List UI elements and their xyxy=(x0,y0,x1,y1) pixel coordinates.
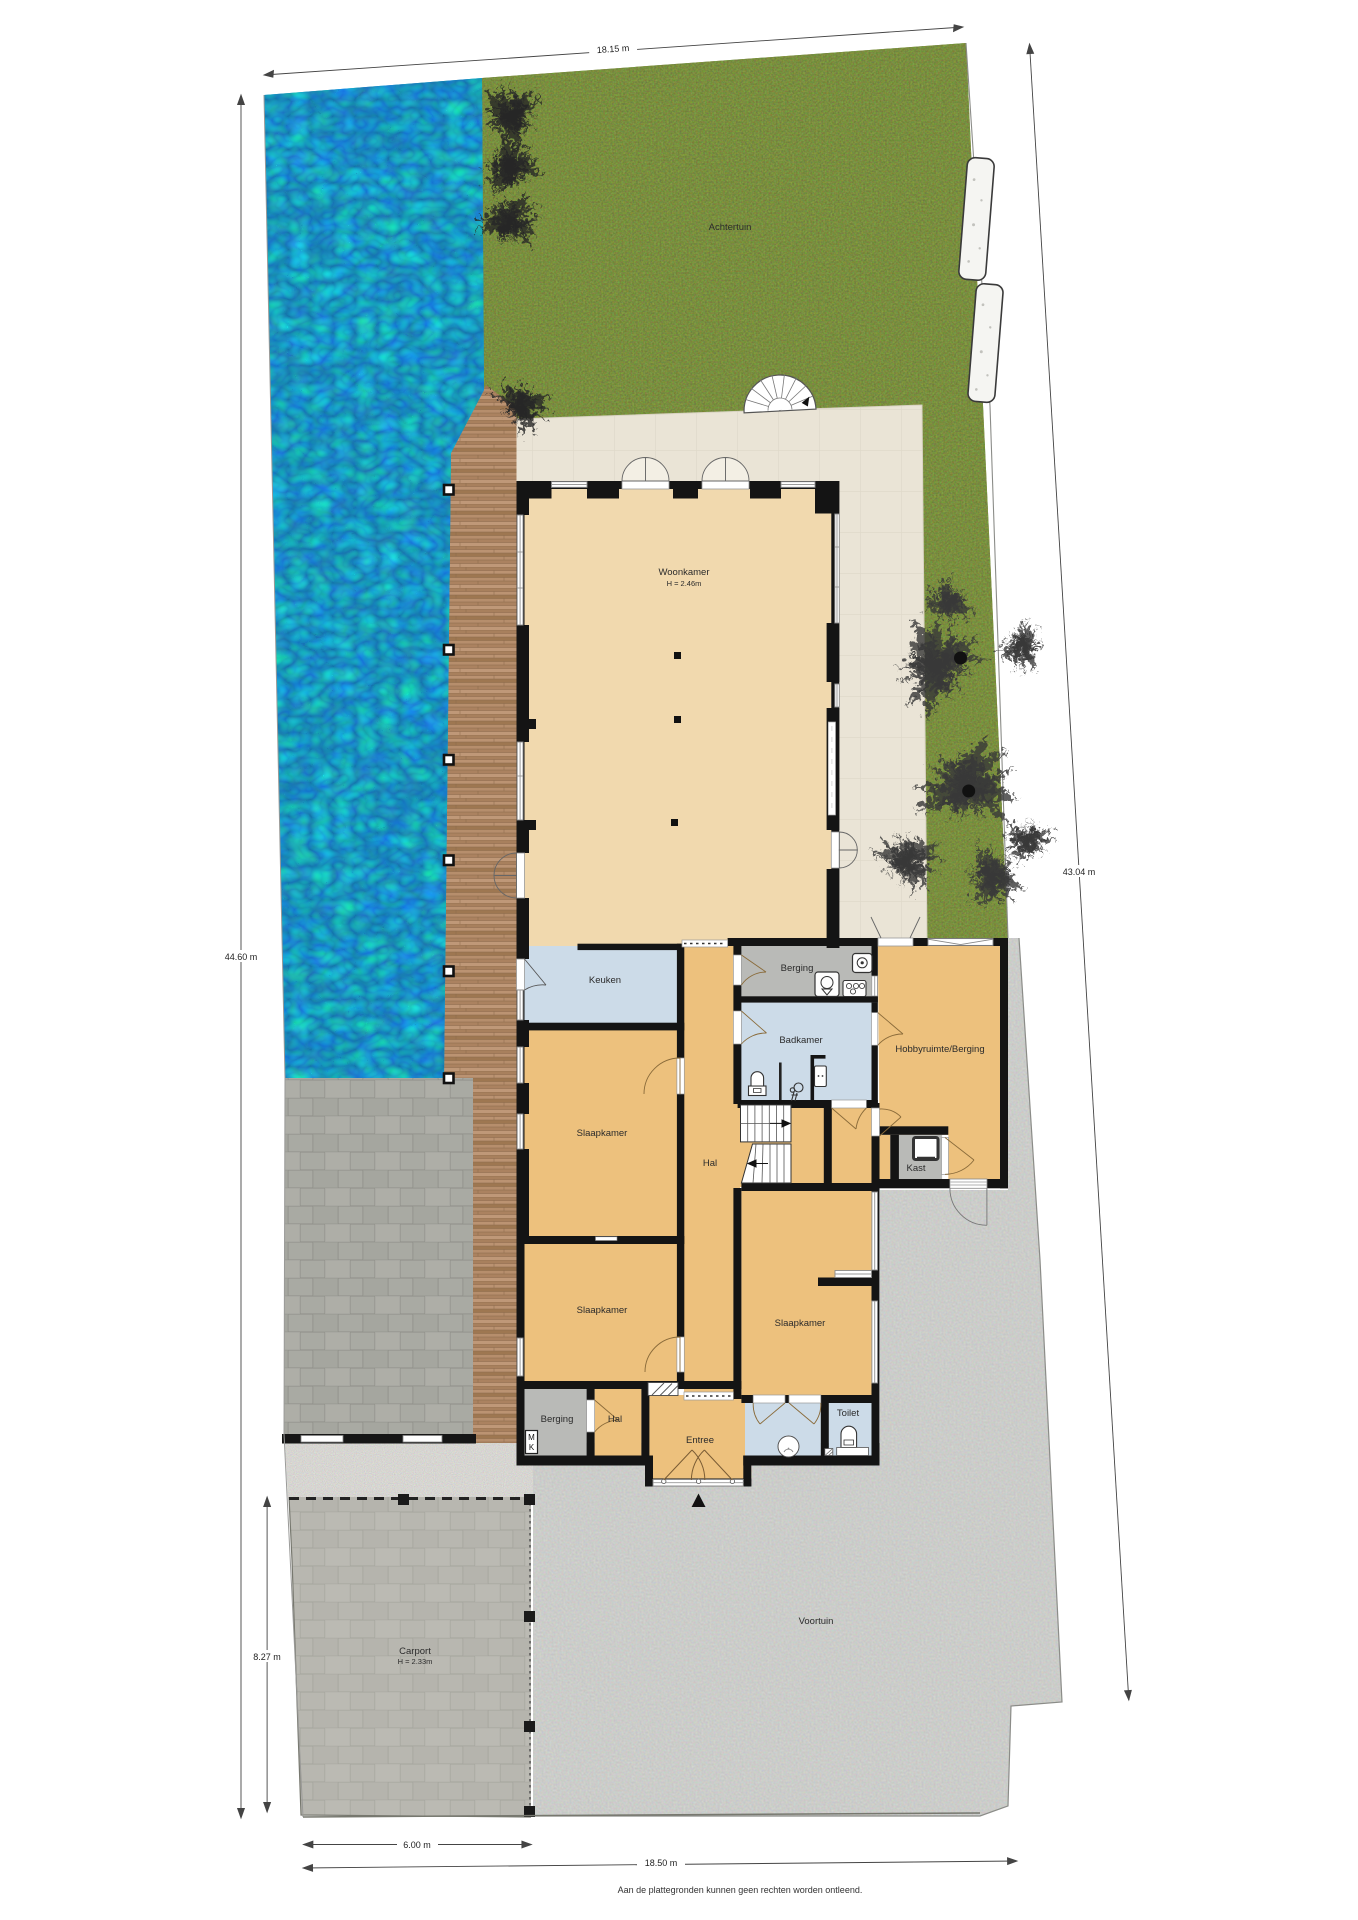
svg-text:18.50 m: 18.50 m xyxy=(645,1858,678,1868)
svg-text:Slaapkamer: Slaapkamer xyxy=(775,1318,826,1329)
svg-text:Kast: Kast xyxy=(906,1163,925,1174)
svg-text:Hobbyruimte/Berging: Hobbyruimte/Berging xyxy=(895,1044,984,1055)
svg-text:Berging: Berging xyxy=(781,963,814,974)
svg-text:K: K xyxy=(529,1443,535,1452)
svg-text:8.27 m: 8.27 m xyxy=(253,1652,281,1662)
svg-text:Aan de plattegronden kunnen ge: Aan de plattegronden kunnen geen rechten… xyxy=(618,1885,863,1895)
svg-text:6.00 m: 6.00 m xyxy=(403,1840,431,1850)
svg-text:Badkamer: Badkamer xyxy=(779,1035,822,1046)
svg-text:H = 2.33m: H = 2.33m xyxy=(398,1657,433,1666)
svg-text:44.60 m: 44.60 m xyxy=(225,952,258,962)
svg-text:Toilet: Toilet xyxy=(837,1408,860,1419)
svg-text:Keuken: Keuken xyxy=(589,975,621,986)
svg-text:Slaapkamer: Slaapkamer xyxy=(577,1128,628,1139)
svg-text:Woonkamer: Woonkamer xyxy=(658,567,709,578)
svg-text:Voortuin: Voortuin xyxy=(799,1616,834,1627)
svg-text:H = 2.46m: H = 2.46m xyxy=(667,579,702,588)
svg-text:43.04 m: 43.04 m xyxy=(1063,867,1096,877)
svg-text:M: M xyxy=(528,1433,535,1442)
svg-text:Hal: Hal xyxy=(608,1414,622,1425)
svg-text:Berging: Berging xyxy=(541,1414,574,1425)
svg-text:Slaapkamer: Slaapkamer xyxy=(577,1305,628,1316)
svg-text:Entree: Entree xyxy=(686,1435,714,1446)
svg-text:Achtertuin: Achtertuin xyxy=(709,222,752,233)
svg-text:Carport: Carport xyxy=(399,1646,431,1657)
svg-text:Hal: Hal xyxy=(703,1158,717,1169)
